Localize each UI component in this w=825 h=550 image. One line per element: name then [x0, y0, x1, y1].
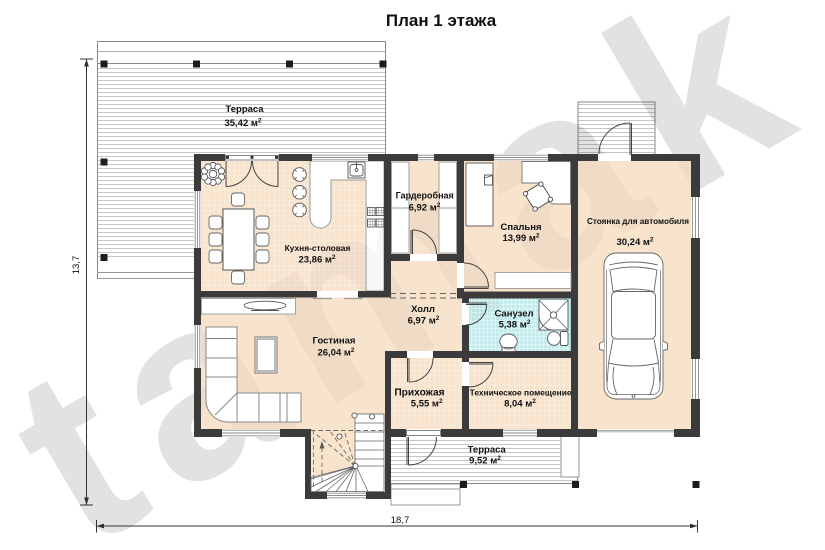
svg-text:Санузел: Санузел	[494, 309, 533, 320]
svg-text:Терраса: Терраса	[225, 104, 264, 115]
svg-text:30,24 м2: 30,24 м2	[616, 237, 653, 249]
svg-text:Гостиная: Гостиная	[313, 336, 356, 347]
svg-text:6,92 м2: 6,92 м2	[409, 202, 441, 214]
svg-text:9,52 м2: 9,52 м2	[469, 455, 501, 467]
svg-text:Техническое помещение: Техническое помещение	[470, 388, 572, 398]
svg-text:План 1 этажа: План 1 этажа	[386, 11, 497, 30]
svg-text:23,86 м2: 23,86 м2	[298, 254, 335, 266]
svg-text:6,97 м2: 6,97 м2	[408, 315, 440, 327]
svg-text:Стоянка для автомобиля: Стоянка для автомобиля	[587, 216, 689, 226]
svg-text:8,04 м2: 8,04 м2	[504, 398, 536, 410]
svg-text:Гардеробная: Гардеробная	[396, 191, 454, 201]
svg-text:13,7: 13,7	[71, 256, 82, 275]
svg-text:35,42 м2: 35,42 м2	[224, 118, 261, 130]
svg-text:Терраса: Терраса	[468, 445, 507, 456]
svg-text:Кухня-столовая: Кухня-столовая	[285, 243, 351, 253]
svg-text:Холл: Холл	[411, 304, 435, 315]
svg-text:13,99 м2: 13,99 м2	[502, 232, 539, 244]
svg-text:5,55 м2: 5,55 м2	[411, 398, 443, 410]
svg-text:26,04 м2: 26,04 м2	[317, 347, 354, 359]
svg-text:5,38 м2: 5,38 м2	[499, 319, 531, 331]
svg-text:18,7: 18,7	[391, 515, 410, 526]
svg-text:Прихожая: Прихожая	[394, 388, 444, 399]
